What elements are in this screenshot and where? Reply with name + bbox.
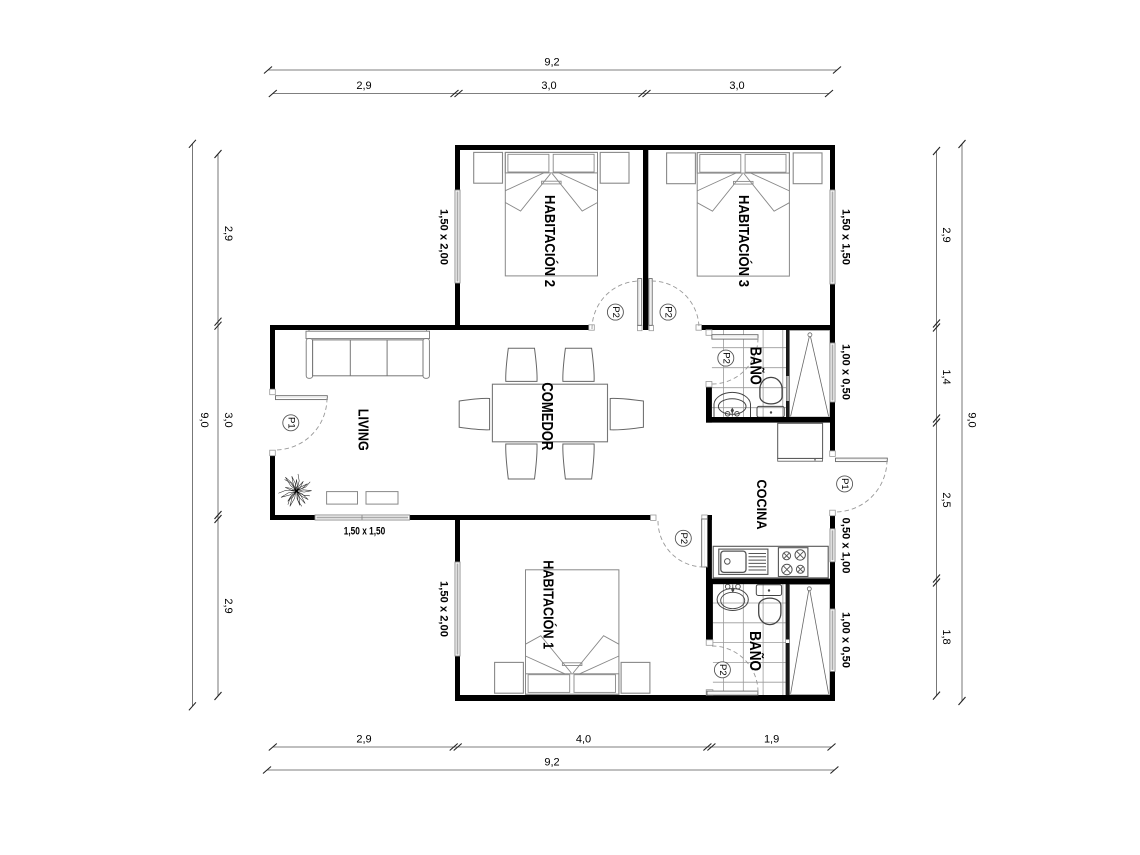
svg-text:1,00 x 0,50: 1,00 x 0,50 bbox=[840, 344, 852, 400]
svg-text:BAÑO: BAÑO bbox=[747, 347, 767, 385]
svg-text:9,2: 9,2 bbox=[544, 757, 559, 769]
svg-text:9,0: 9,0 bbox=[198, 412, 210, 427]
svg-text:COMEDOR: COMEDOR bbox=[538, 382, 555, 450]
svg-text:HABITACIÓN 2: HABITACIÓN 2 bbox=[541, 195, 559, 287]
svg-text:4,0: 4,0 bbox=[576, 734, 591, 746]
svg-text:P1: P1 bbox=[285, 417, 296, 429]
svg-text:1,00 x 0,50: 1,00 x 0,50 bbox=[840, 612, 852, 668]
svg-text:1,50 x 2,00: 1,50 x 2,00 bbox=[438, 209, 450, 265]
svg-text:1,50 x 2,00: 1,50 x 2,00 bbox=[438, 581, 450, 637]
svg-text:HABITACIÓN 3: HABITACIÓN 3 bbox=[735, 195, 753, 287]
svg-text:P2: P2 bbox=[720, 352, 731, 364]
svg-text:9,0: 9,0 bbox=[966, 412, 978, 427]
svg-text:2,9: 2,9 bbox=[356, 734, 371, 746]
svg-text:1,50 x 1,50: 1,50 x 1,50 bbox=[344, 526, 386, 538]
svg-text:BAÑO: BAÑO bbox=[746, 631, 766, 671]
svg-text:2,9: 2,9 bbox=[356, 80, 371, 92]
svg-text:P2: P2 bbox=[663, 306, 674, 318]
svg-text:HABITACIÓN 1: HABITACIÓN 1 bbox=[540, 560, 558, 649]
svg-text:1,8: 1,8 bbox=[940, 629, 952, 644]
svg-text:3,0: 3,0 bbox=[541, 80, 556, 92]
svg-text:P2: P2 bbox=[717, 664, 728, 676]
svg-text:0,50 x 1,00: 0,50 x 1,00 bbox=[840, 518, 852, 574]
svg-text:LIVING: LIVING bbox=[354, 409, 371, 451]
svg-text:3,0: 3,0 bbox=[729, 80, 744, 92]
svg-text:2,9: 2,9 bbox=[940, 227, 952, 242]
svg-text:3,0: 3,0 bbox=[222, 412, 234, 427]
svg-text:COCINA: COCINA bbox=[754, 480, 770, 530]
svg-text:2,9: 2,9 bbox=[222, 226, 234, 241]
svg-text:1,50 x 1,50: 1,50 x 1,50 bbox=[840, 209, 852, 265]
svg-text:1,4: 1,4 bbox=[940, 369, 952, 384]
svg-text:P2: P2 bbox=[610, 306, 621, 318]
svg-text:1,9: 1,9 bbox=[764, 734, 779, 746]
svg-text:2,9: 2,9 bbox=[222, 598, 234, 613]
svg-text:P2: P2 bbox=[678, 532, 689, 544]
svg-text:P1: P1 bbox=[839, 478, 850, 490]
svg-text:9,2: 9,2 bbox=[544, 57, 559, 69]
svg-text:2,5: 2,5 bbox=[940, 492, 952, 507]
